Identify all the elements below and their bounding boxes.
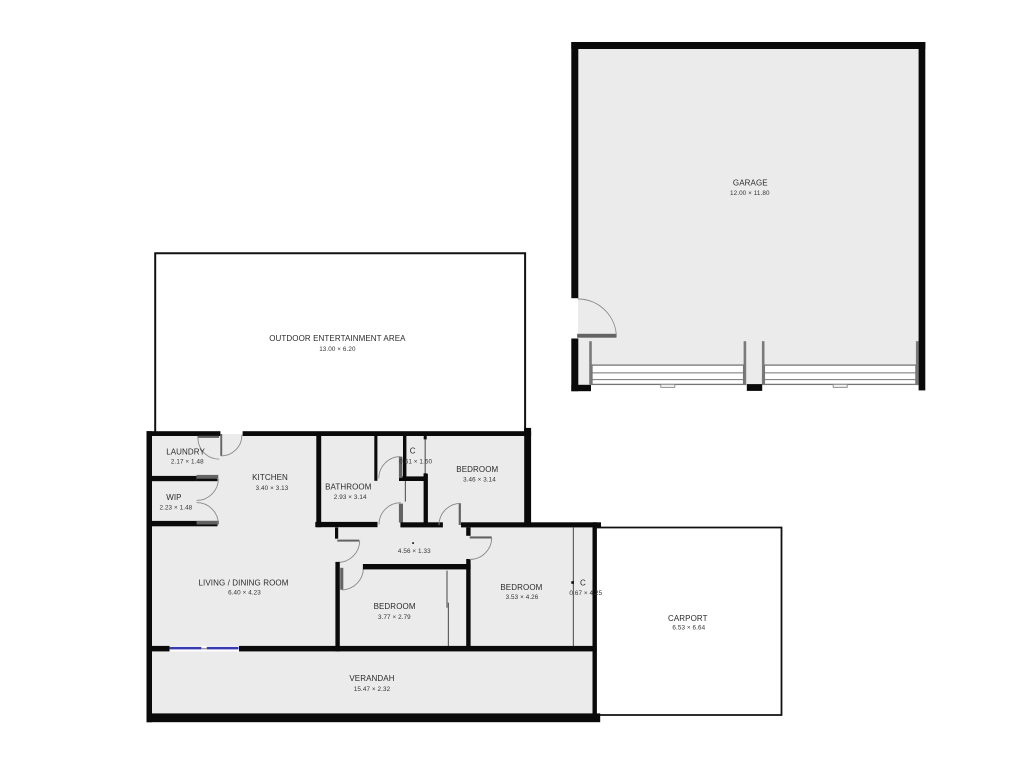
svg-text:3.53 × 4.26: 3.53 × 4.26 (506, 594, 539, 601)
svg-text:C: C (580, 578, 586, 587)
svg-text:BEDROOM: BEDROOM (374, 602, 416, 611)
svg-text:3.77 × 2.79: 3.77 × 2.79 (378, 614, 411, 621)
svg-text:BATHROOM: BATHROOM (325, 483, 372, 492)
svg-text:2.93 × 3.14: 2.93 × 3.14 (334, 494, 367, 501)
svg-text:3.46 × 3.14: 3.46 × 3.14 (463, 476, 496, 483)
svg-text:15.47 × 2.32: 15.47 × 2.32 (354, 686, 391, 693)
svg-text:OUTDOOR ENTERTAINMENT AREA: OUTDOOR ENTERTAINMENT AREA (269, 334, 406, 343)
svg-text:LIVING / DINING ROOM: LIVING / DINING ROOM (198, 578, 288, 587)
svg-text:VERANDAH: VERANDAH (349, 674, 394, 683)
svg-text:BEDROOM: BEDROOM (500, 583, 542, 592)
svg-text:0.61 × 1.50: 0.61 × 1.50 (399, 458, 432, 465)
svg-text:12.00 × 11.80: 12.00 × 11.80 (730, 190, 770, 197)
svg-text:13.00 × 6.20: 13.00 × 6.20 (319, 346, 356, 353)
svg-text:6.53 × 6.64: 6.53 × 6.64 (672, 625, 705, 632)
svg-text:KITCHEN: KITCHEN (252, 473, 288, 482)
svg-text:LAUNDRY: LAUNDRY (166, 448, 205, 457)
svg-text:2.23 × 1.48: 2.23 × 1.48 (160, 504, 193, 511)
svg-text:GARAGE: GARAGE (733, 178, 768, 187)
svg-text:CARPORT: CARPORT (668, 614, 708, 623)
svg-text:WIP: WIP (166, 493, 181, 502)
svg-text:3.40 × 3.13: 3.40 × 3.13 (256, 485, 289, 492)
svg-text:2.17 × 1.48: 2.17 × 1.48 (171, 459, 204, 466)
svg-text:C: C (410, 446, 416, 455)
svg-text:6.40 × 4.23: 6.40 × 4.23 (228, 589, 261, 596)
svg-text:BEDROOM: BEDROOM (456, 465, 498, 474)
svg-text:0.67 × 4.25: 0.67 × 4.25 (569, 590, 602, 597)
svg-text:4.56 × 1.33: 4.56 × 1.33 (398, 548, 431, 555)
